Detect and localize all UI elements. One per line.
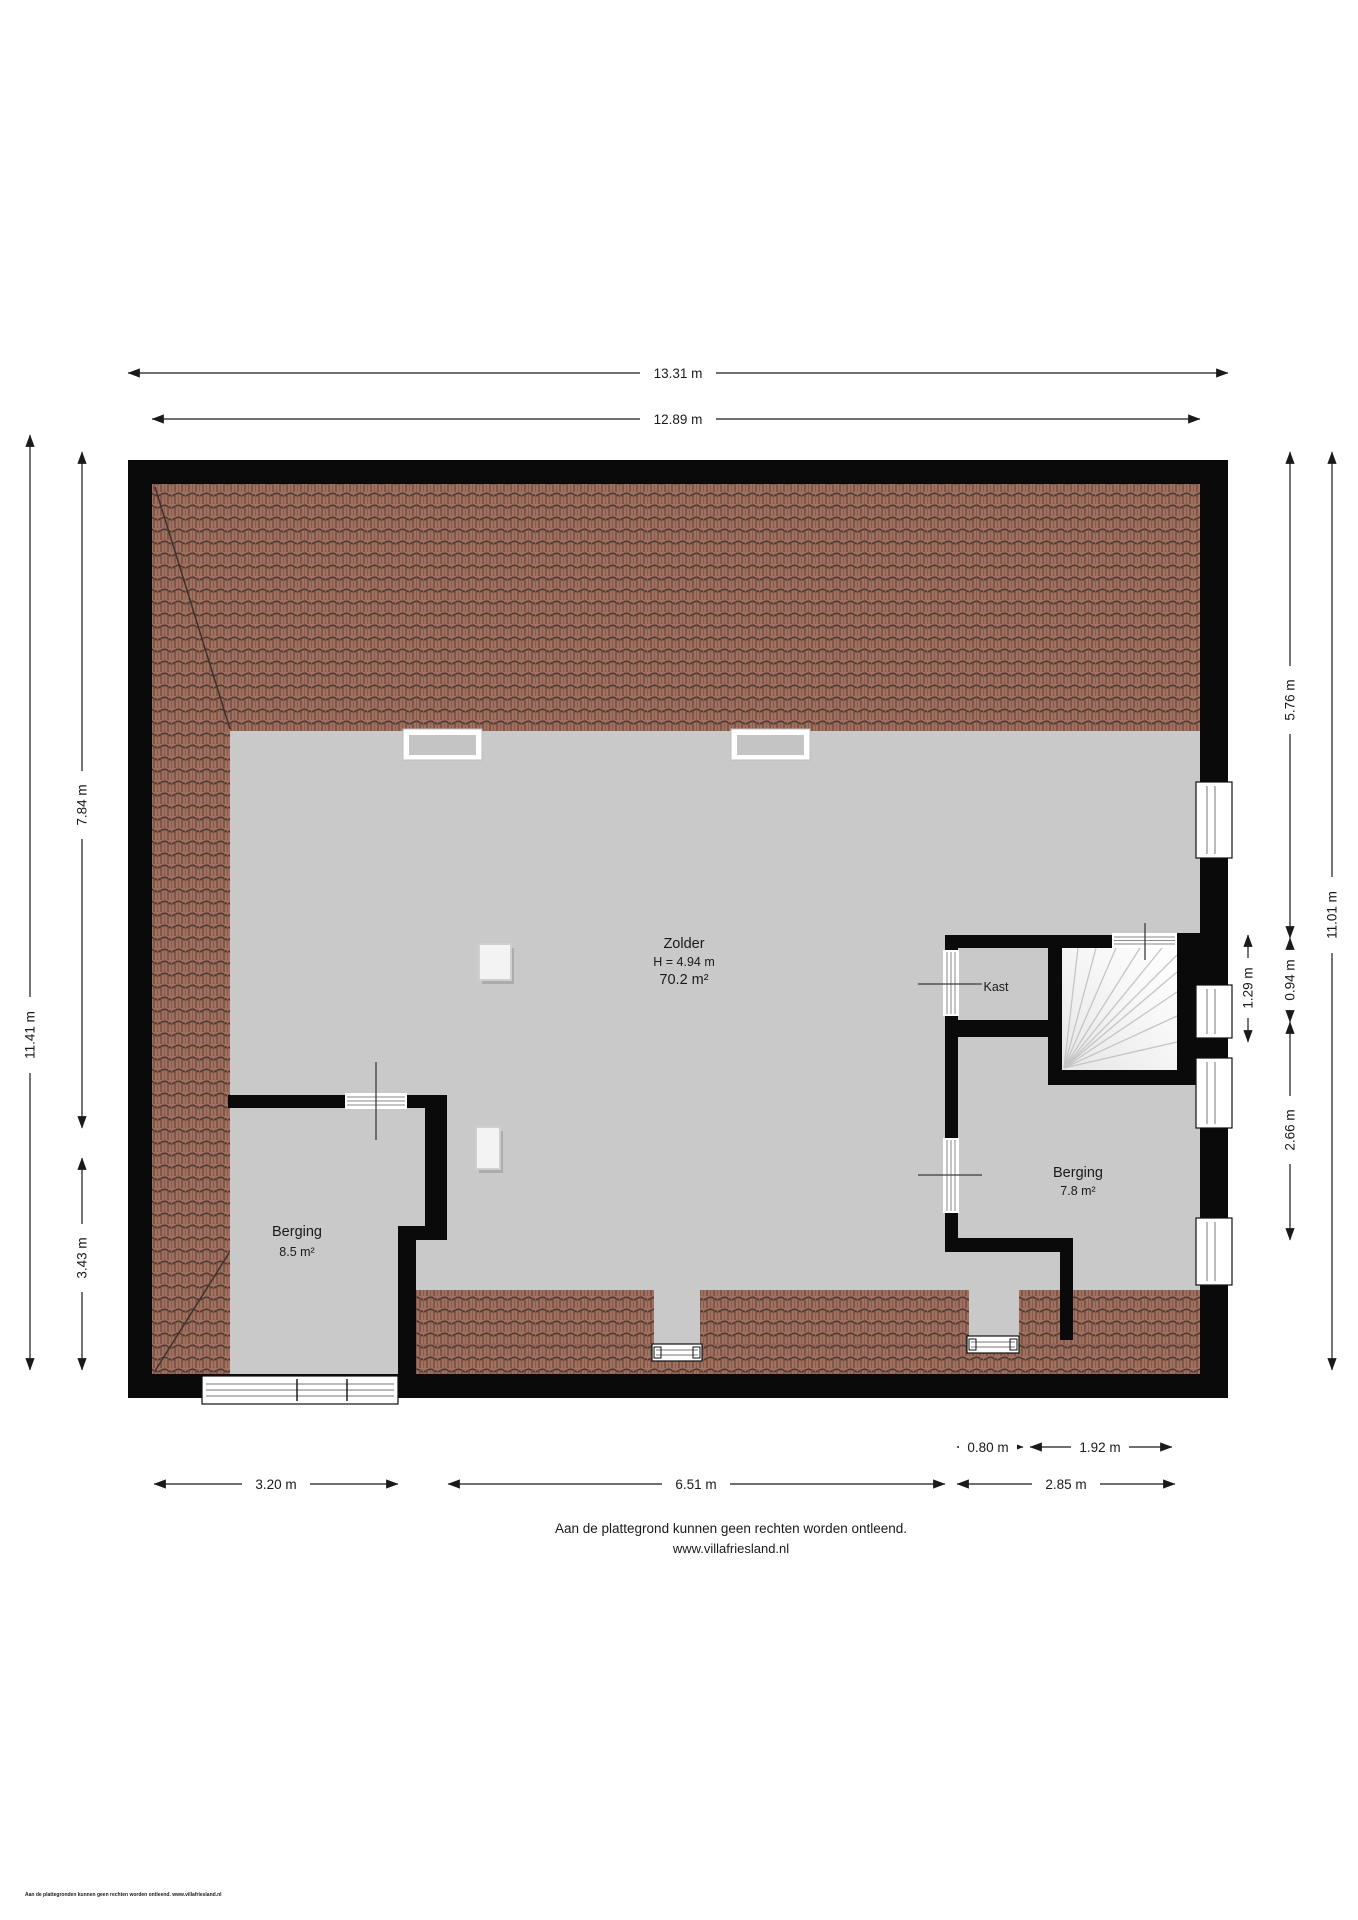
roof-band-top <box>152 484 1200 731</box>
berging-right-name: Berging <box>1053 1165 1103 1181</box>
svg-text:1.92 m: 1.92 m <box>1079 1440 1120 1455</box>
svg-text:11.01 m: 11.01 m <box>1325 891 1340 939</box>
dim-bottom-middle: 6.51 m <box>448 1475 945 1493</box>
roof-window-2 <box>967 1336 1019 1353</box>
chimney-2 <box>476 1127 503 1173</box>
floorplan-page: Zolder H = 4.94 m 70.2 m² Kast Berging 7… <box>0 0 1358 1920</box>
tiny-footer-text: Aan de plattegronden kunnen geen rechten… <box>25 1892 222 1898</box>
roof-band-bottom <box>416 1290 1200 1374</box>
floor-plan-svg: Zolder H = 4.94 m 70.2 m² Kast Berging 7… <box>0 0 1358 1920</box>
dim-right-lower: 2.66 m <box>1281 1022 1299 1240</box>
svg-text:7.84 m: 7.84 m <box>75 784 90 825</box>
right-window-2 <box>1196 1058 1232 1128</box>
svg-text:2.66 m: 2.66 m <box>1283 1109 1298 1150</box>
berging-left-name: Berging <box>272 1224 322 1240</box>
room-label-kast: Kast <box>983 980 1009 994</box>
dim-left-lower: 3.43 m <box>73 1158 91 1370</box>
dim-right-total: 11.01 m <box>1323 452 1341 1370</box>
kast-bottom-wall <box>945 1020 1062 1037</box>
dim-right-stair-inner: 0.94 m <box>1281 938 1299 1022</box>
dim-top-outer: 13.31 m <box>128 364 1228 382</box>
roof-window-1 <box>652 1344 702 1361</box>
roof-band-left <box>152 484 230 1374</box>
svg-text:13.31 m: 13.31 m <box>654 366 703 381</box>
dim-left-total: 11.41 m <box>21 435 39 1370</box>
right-window-landing <box>1196 782 1232 858</box>
dim-bottom-stairs: 1.92 m <box>1030 1438 1172 1456</box>
svg-text:6.51 m: 6.51 m <box>675 1477 716 1492</box>
berging-left-area: 8.5 m² <box>279 1245 314 1259</box>
dim-right-stair-outer: 1.29 m <box>1239 935 1257 1042</box>
zolder-name: Zolder <box>663 936 704 952</box>
svg-text:3.20 m: 3.20 m <box>255 1477 296 1492</box>
svg-text:11.41 m: 11.41 m <box>23 1011 38 1059</box>
svg-text:5.76 m: 5.76 m <box>1283 679 1298 720</box>
kast-stair-wall <box>1048 948 1062 1020</box>
svg-text:0.94 m: 0.94 m <box>1283 959 1298 1000</box>
dim-bottom-kast: 0.80 m <box>957 1438 1023 1456</box>
dim-top-inner: 12.89 m <box>152 410 1200 428</box>
roof-notch-2 <box>969 1290 1019 1338</box>
berging-right-area: 7.8 m² <box>1060 1184 1095 1198</box>
website-text: www.villafriesland.nl <box>672 1541 789 1556</box>
zolder-height: H = 4.94 m <box>653 955 715 969</box>
skylight-left <box>403 729 482 760</box>
svg-text:3.43 m: 3.43 m <box>75 1237 90 1278</box>
dim-bottom-left: 3.20 m <box>154 1475 398 1493</box>
svg-text:2.85 m: 2.85 m <box>1045 1477 1086 1492</box>
roof-notch-1 <box>654 1290 700 1346</box>
svg-text:12.89 m: 12.89 m <box>654 412 703 427</box>
dim-left-upper: 7.84 m <box>73 452 91 1128</box>
right-window-1 <box>1196 985 1232 1038</box>
svg-text:1.29 m: 1.29 m <box>1241 967 1256 1008</box>
right-window-3 <box>1196 1218 1232 1285</box>
dim-bottom-right: 2.85 m <box>957 1475 1175 1493</box>
skylight-right <box>731 729 810 760</box>
dim-right-upper: 5.76 m <box>1281 452 1299 938</box>
disclaimer-text: Aan de plattegrond kunnen geen rechten w… <box>555 1521 907 1536</box>
kast-top-wall <box>945 935 1112 948</box>
zolder-area: 70.2 m² <box>659 972 708 988</box>
berging-left-window <box>202 1376 398 1404</box>
chimney-1 <box>479 944 514 984</box>
building: Zolder H = 4.94 m 70.2 m² Kast Berging 7… <box>128 460 1232 1404</box>
svg-text:0.80 m: 0.80 m <box>967 1440 1008 1455</box>
